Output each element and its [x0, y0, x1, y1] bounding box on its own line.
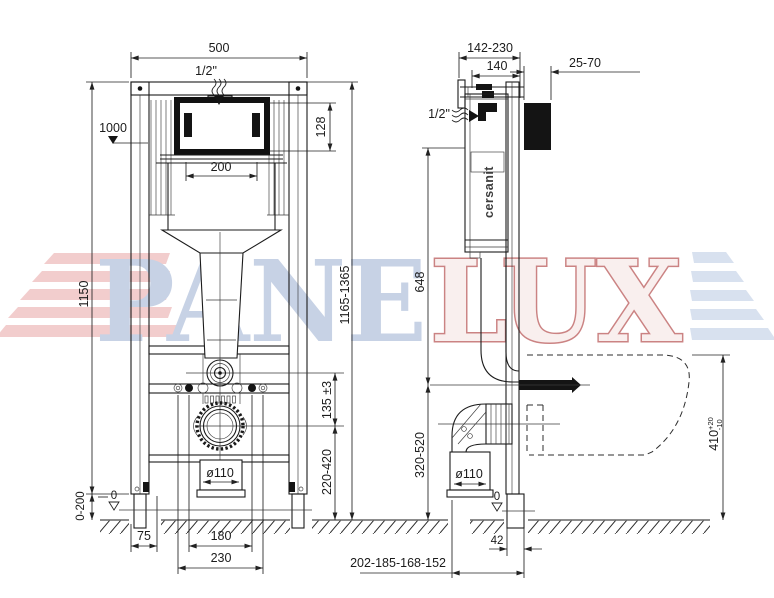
bracket-bolt [476, 84, 492, 90]
dim-drain-axis-height: 320-520 [413, 432, 427, 478]
side-view: cersanit [350, 41, 730, 578]
dim-inlet-front: 1/2" [195, 64, 217, 78]
dim-drain-diameter-front: ø110 [206, 466, 234, 480]
window-clip-left [184, 113, 192, 137]
dim-total-height: 1165-1365 [338, 266, 352, 325]
dim-window-height: 128 [314, 117, 328, 138]
floor-zero-marker-side [492, 503, 502, 511]
dim-opening-width: 200 [211, 160, 232, 174]
drawing-layer: 500 1/2" 1000 128 200 1150 1165-1365 135… [0, 0, 774, 598]
dim-bolt-spacing: 180 [211, 529, 232, 543]
dim-floor-zero-side: 0 [494, 491, 500, 503]
dim-leg-offset: 42 [491, 535, 504, 547]
drain-elbow-side [447, 404, 512, 497]
drain-opening-lip [197, 490, 245, 497]
leg-hole-left [135, 487, 139, 491]
leg-hole-right [299, 487, 303, 491]
dim-inlet-height: 648 [413, 272, 427, 293]
dim-inlet-side: 1/2" [428, 107, 450, 121]
frame-screw-left [138, 86, 143, 91]
dim-leg-adjust: 0-200 [75, 491, 87, 520]
flush-pipe-front [200, 253, 243, 358]
front-view: 500 1/2" 1000 128 200 1150 1165-1365 135… [75, 41, 358, 574]
dim-drain-height: 220-420 [320, 449, 334, 495]
dim-floor-zero-front: 0 [111, 490, 117, 502]
window-clip-right [252, 113, 260, 137]
dim-frame-depth: 140 [487, 59, 508, 73]
flush-pipe-side [481, 258, 519, 382]
tank-funnel [162, 230, 281, 253]
frame-screw-right [296, 86, 301, 91]
dim-foot-offset: 75 [137, 529, 151, 543]
dim-flush-to-drain: 135 ±3 [320, 381, 334, 419]
bowl-outline [527, 355, 689, 455]
side-frame [458, 80, 524, 528]
wall-section [524, 103, 551, 150]
dim-bracket-depth: 142-230 [467, 41, 513, 55]
floor-hatching [100, 520, 710, 534]
dim-drain-width: 230 [211, 551, 232, 565]
dim-wall-thickness: 25-70 [569, 56, 601, 70]
leg-clip-left [143, 482, 149, 492]
fill-valve [478, 103, 497, 121]
dim-width: 500 [209, 41, 230, 55]
dim-frame-height: 1150 [77, 281, 91, 308]
brand-logo: cersanit [482, 166, 496, 218]
dim-install-height: 1000 [99, 121, 127, 135]
dim-bowl-height: 410+20-10 [706, 417, 724, 451]
dim-drain-diameter-side: ø110 [455, 467, 483, 481]
floor-zero-marker [109, 502, 119, 510]
dim-drain-depths: 202-185-168-152 [350, 556, 446, 570]
leg-clip-right [289, 482, 295, 492]
technical-drawing-page: PANE LUX [0, 0, 774, 598]
